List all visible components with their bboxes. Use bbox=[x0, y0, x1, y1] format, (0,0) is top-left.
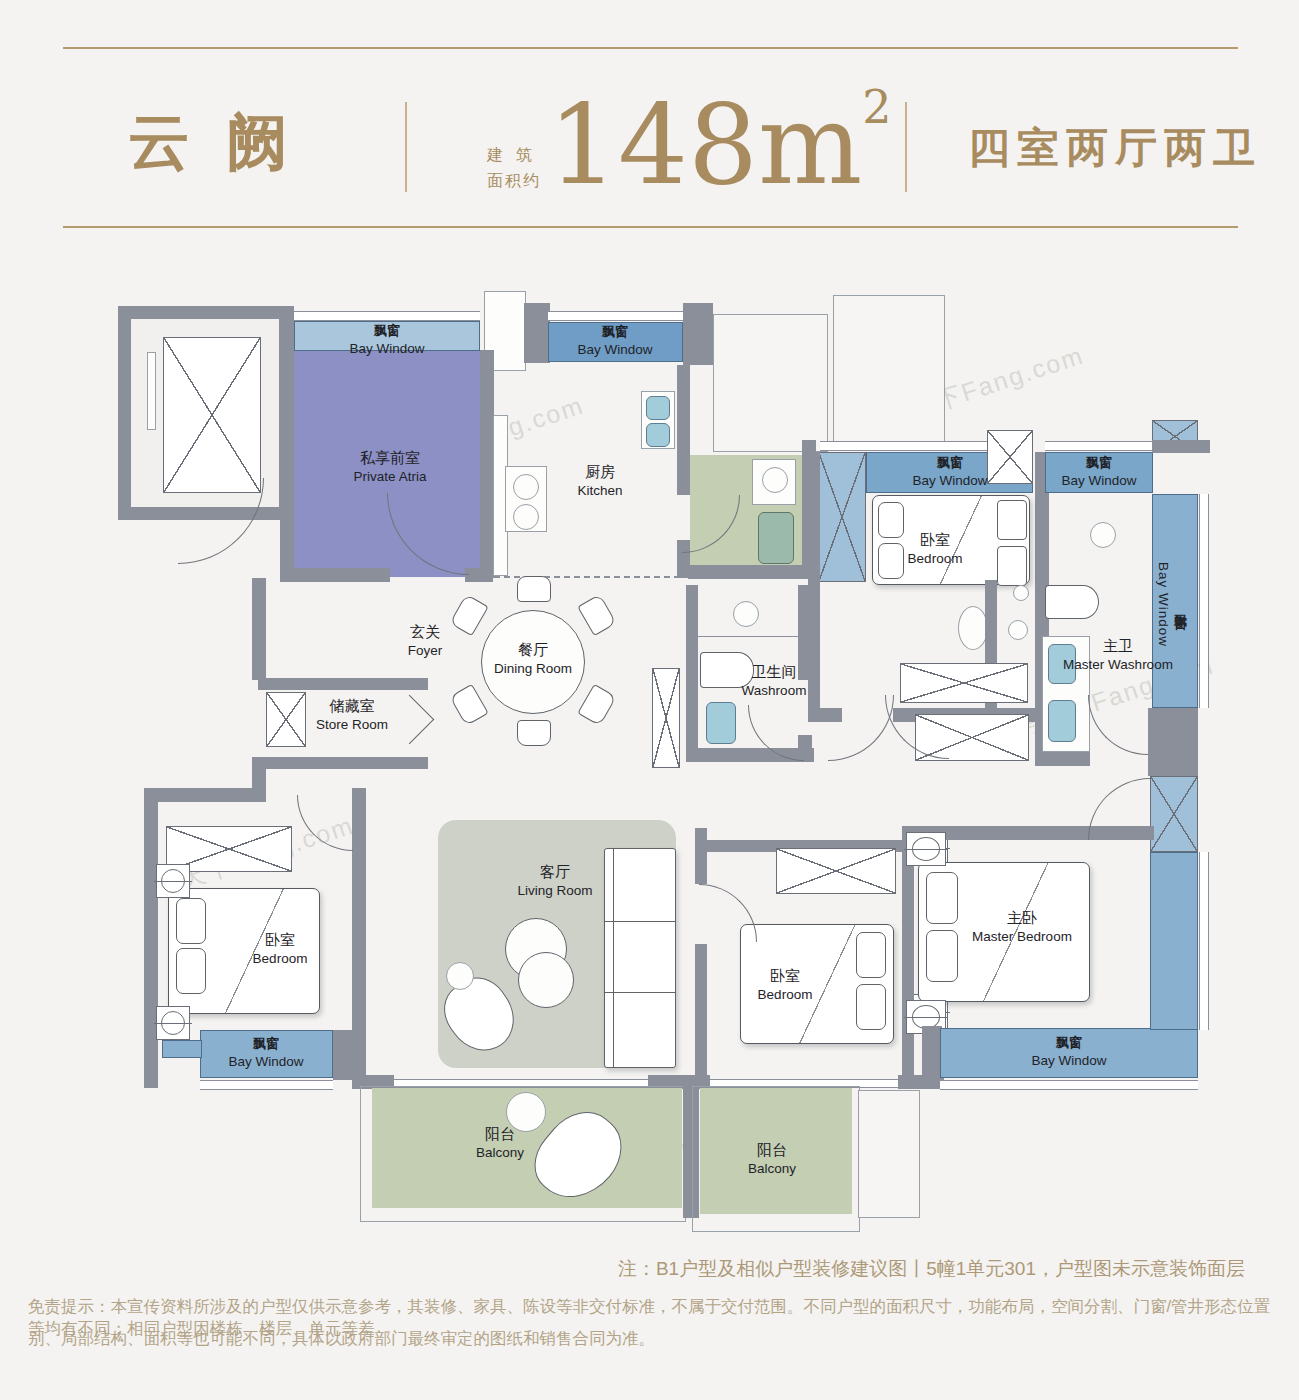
equipment-platform bbox=[833, 295, 945, 447]
wall bbox=[1152, 440, 1210, 453]
dining-chair bbox=[577, 684, 617, 726]
dining-chair bbox=[517, 720, 551, 746]
window-glazing bbox=[1199, 852, 1209, 1030]
cabinet bbox=[652, 668, 680, 768]
toilet-icon bbox=[1045, 585, 1099, 619]
area-label-line1: 建筑 bbox=[487, 142, 545, 168]
wall bbox=[280, 306, 294, 578]
sink-basin-icon bbox=[706, 702, 736, 744]
label-living-room: 客厅Living Room bbox=[517, 862, 592, 899]
wall bbox=[686, 585, 698, 760]
area-value: 148m2 bbox=[548, 84, 892, 200]
side-table bbox=[446, 962, 474, 990]
wall bbox=[695, 944, 707, 1078]
duct-shaft bbox=[987, 430, 1033, 484]
sofa bbox=[604, 848, 676, 1068]
bay-window-tab bbox=[162, 1040, 202, 1058]
label-master-washroom: 主卫Master Washroom bbox=[1062, 636, 1174, 673]
dining-chair bbox=[449, 594, 489, 636]
header-divider-right bbox=[905, 102, 907, 192]
door-swing bbox=[828, 695, 894, 761]
pillow-icon bbox=[856, 984, 886, 1030]
area-superscript: 2 bbox=[862, 80, 891, 134]
label-store-room: 储藏室Store Room bbox=[316, 696, 388, 733]
bay-window-panel bbox=[818, 452, 866, 582]
wall bbox=[688, 565, 816, 579]
label-bay-window: 飘窗Bay Window bbox=[1061, 455, 1136, 489]
sink-basin-icon bbox=[646, 396, 670, 420]
door-swing bbox=[885, 695, 949, 759]
wall bbox=[683, 303, 713, 365]
nightstand bbox=[906, 832, 946, 866]
nightstand bbox=[997, 500, 1027, 540]
label-bay-window: 飘窗Bay Window bbox=[1031, 1035, 1106, 1069]
store-room-arrow-icon bbox=[385, 695, 434, 744]
window-glazing bbox=[1199, 494, 1209, 708]
wardrobe bbox=[776, 848, 896, 894]
wall bbox=[480, 350, 494, 578]
header-top-rule bbox=[63, 47, 1238, 49]
label-bay-window: 飘窗Bay Window bbox=[577, 324, 652, 358]
floorplan-page: 云阙 建筑 面积约 148m2 四室两厅两卫 房天下Fang.com 房天下Fa… bbox=[0, 0, 1299, 1400]
pillow-icon bbox=[176, 898, 206, 944]
header-bottom-rule bbox=[63, 226, 1238, 228]
door-swing bbox=[1088, 778, 1150, 840]
label-bedroom-bl: 卧室Bedroom bbox=[253, 930, 308, 967]
label-dining: 餐厅Dining Room bbox=[494, 640, 572, 677]
pillow-icon bbox=[926, 872, 958, 924]
door-swing bbox=[297, 795, 353, 851]
label-bedroom-tr: 卧室Bedroom bbox=[908, 530, 963, 567]
label-bedroom-bm: 卧室Bedroom bbox=[758, 966, 813, 1003]
window-glazing bbox=[1045, 441, 1153, 451]
wall bbox=[922, 1026, 942, 1080]
shower-head-icon bbox=[1013, 585, 1029, 601]
equipment-platform bbox=[713, 314, 828, 452]
wet-zone-divider bbox=[698, 636, 798, 637]
elevator-door-slot bbox=[147, 352, 156, 430]
nightstand bbox=[156, 864, 190, 898]
label-kitchen: 厨房Kitchen bbox=[577, 462, 622, 499]
window-glazing bbox=[940, 1080, 1198, 1090]
coffee-table bbox=[518, 952, 574, 1008]
area-number: 148m bbox=[548, 81, 862, 209]
wall bbox=[144, 788, 266, 802]
wall bbox=[280, 568, 390, 582]
label-private-atria: 私享前室Private Atria bbox=[354, 448, 427, 485]
sink-basin-icon bbox=[1048, 700, 1076, 742]
header-divider-left bbox=[405, 102, 407, 192]
wall bbox=[524, 303, 550, 363]
label-bay-window: 飘窗Bay Window bbox=[349, 323, 424, 357]
label-bay-window: 飘窗Bay Window bbox=[912, 455, 987, 489]
elevator-car-icon bbox=[163, 337, 261, 493]
dining-chair bbox=[517, 576, 551, 602]
stove-burner-icon bbox=[513, 474, 539, 500]
wall bbox=[252, 578, 266, 680]
nightstand bbox=[156, 1006, 190, 1040]
nightstand bbox=[997, 546, 1027, 586]
wall bbox=[677, 365, 690, 495]
label-master-bedroom: 主卧Master Bedroom bbox=[966, 908, 1078, 945]
window-glazing bbox=[200, 1080, 333, 1090]
shower-head-icon bbox=[1090, 522, 1116, 548]
bay-window-master-right bbox=[1150, 852, 1198, 1030]
wash-basin-icon bbox=[958, 606, 988, 650]
washing-machine-drum-icon bbox=[762, 467, 788, 493]
pillow-icon bbox=[856, 932, 886, 978]
window-glazing bbox=[294, 311, 480, 321]
shower-head-icon bbox=[733, 601, 759, 627]
wall bbox=[1148, 708, 1198, 776]
shower-head-icon bbox=[1008, 620, 1028, 640]
plan-title: 云阙 bbox=[128, 100, 324, 184]
disclaimer-line2: 别、局部结构、面积等也可能不同，具体以政府部门最终审定的图纸和销售合同为准。 bbox=[28, 1328, 1278, 1350]
door-swing bbox=[178, 478, 264, 564]
dining-chair bbox=[449, 684, 489, 726]
wall bbox=[1035, 752, 1090, 766]
pillow-icon bbox=[878, 543, 904, 579]
plan-note: 注：B1户型及相似户型装修建议图丨5幢1单元301，户型图未示意装饰面层 bbox=[618, 1256, 1245, 1282]
stove-burner-icon bbox=[513, 504, 539, 530]
label-washroom: 卫生间Washroom bbox=[742, 662, 807, 699]
pillow-icon bbox=[878, 502, 904, 538]
label-bay-window: 飘窗Bay Window bbox=[228, 1036, 303, 1070]
window-glazing bbox=[548, 311, 683, 321]
sink-basin-icon bbox=[646, 423, 670, 447]
pillow-icon bbox=[926, 930, 958, 982]
area-label-line2: 面积约 bbox=[487, 168, 545, 194]
wall bbox=[902, 840, 914, 1078]
wall bbox=[144, 788, 158, 1088]
storage-shelf bbox=[266, 692, 306, 747]
dining-chair bbox=[577, 594, 617, 636]
layout-text: 四室两厅两卫 bbox=[968, 120, 1262, 176]
area-label: 建筑 面积约 bbox=[487, 142, 545, 193]
wall bbox=[695, 828, 707, 884]
door-swing bbox=[699, 884, 757, 942]
label-balcony-right: 阳台Balcony bbox=[748, 1140, 796, 1177]
wall bbox=[258, 678, 428, 690]
pillow-icon bbox=[176, 948, 206, 994]
wall bbox=[333, 1030, 363, 1080]
equipment-platform bbox=[858, 1090, 920, 1218]
wall bbox=[258, 757, 428, 769]
door-swing bbox=[1088, 695, 1148, 755]
label-balcony-left: 阳台Balcony bbox=[476, 1124, 524, 1161]
utility-sink-icon bbox=[758, 512, 794, 564]
label-foyer: 玄关Foyer bbox=[408, 622, 443, 659]
bay-window-panel bbox=[1150, 776, 1198, 852]
